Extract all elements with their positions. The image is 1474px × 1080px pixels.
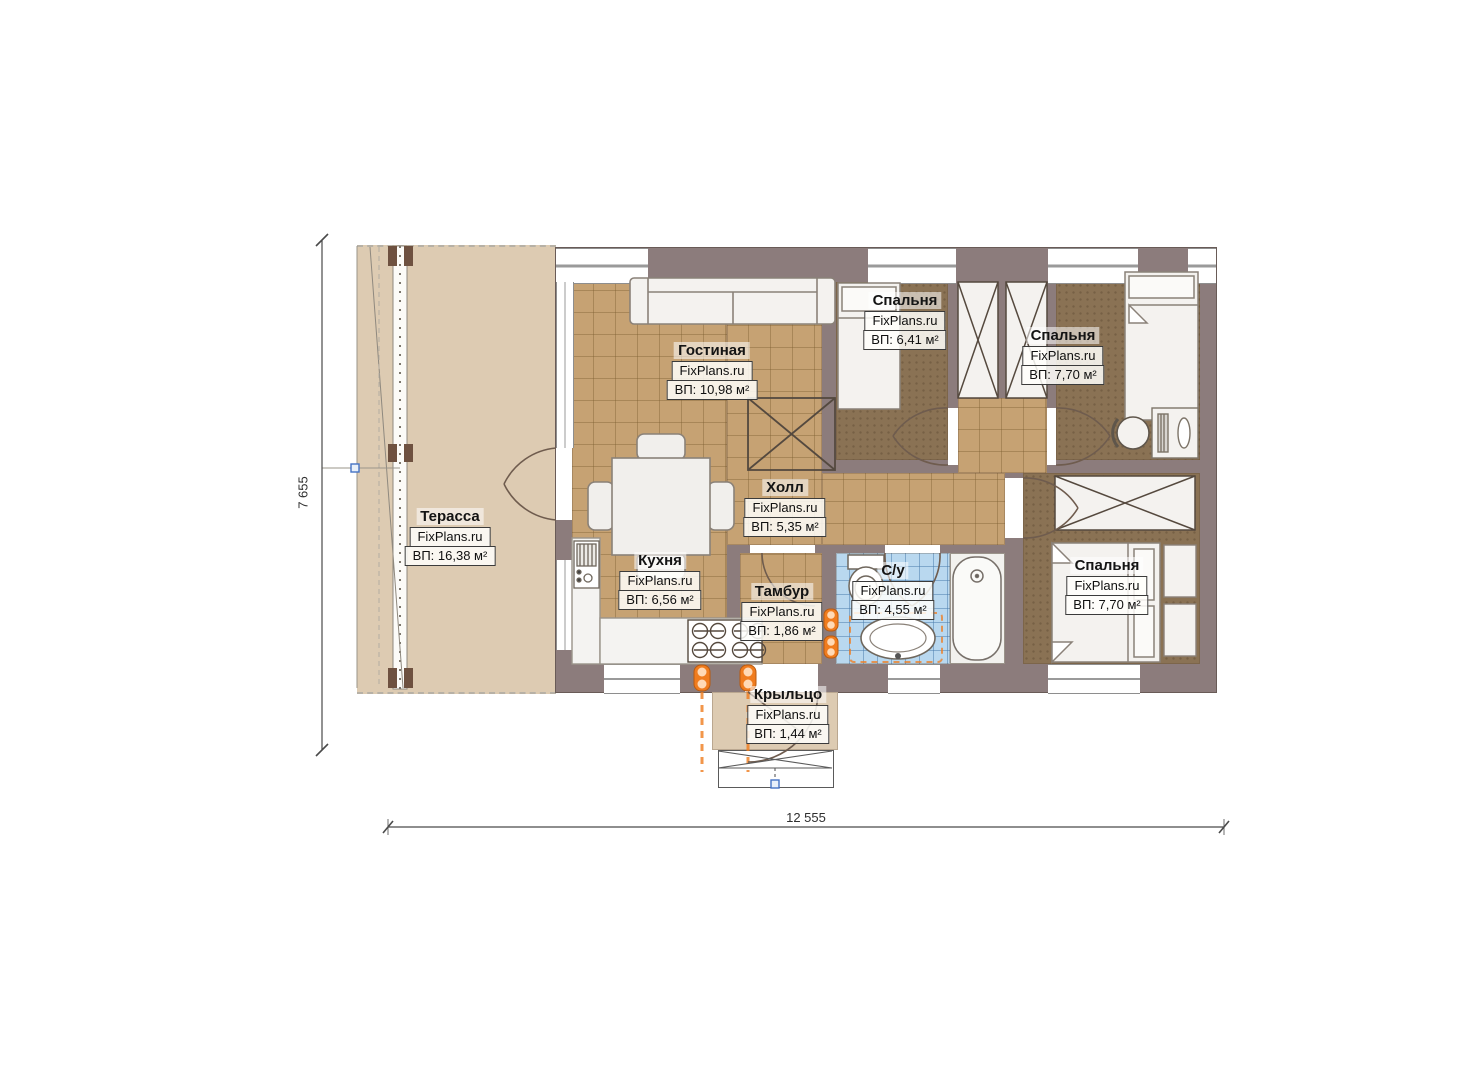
room-name: Крыльцо (750, 686, 826, 703)
room-label-kitchen: Кухня FixPlans.ru ВП: 6,56 м² (618, 552, 701, 610)
room-area: ВП: 6,41 м² (863, 330, 946, 350)
room-name: Кухня (634, 552, 686, 569)
hall-floor (822, 473, 1005, 545)
room-name: Спальня (869, 292, 942, 309)
watermark: FixPlans.ru (747, 705, 828, 725)
room-area: ВП: 7,70 м² (1021, 365, 1104, 385)
room-area: ВП: 4,55 м² (851, 600, 934, 620)
window-bedroom-bottom (1048, 664, 1140, 694)
window-corner (1188, 248, 1216, 284)
window-bedroom-top (868, 248, 956, 284)
window-bathroom (888, 664, 940, 694)
window-bedroom-right (1048, 248, 1138, 284)
watermark: FixPlans.ru (619, 571, 700, 591)
room-name: Терасса (416, 508, 483, 525)
room-name: Спальня (1071, 557, 1144, 574)
bathtub-zone (950, 553, 1005, 664)
door-gap-bedroom-right (1047, 408, 1056, 465)
room-label-living: Гостиная FixPlans.ru ВП: 10,98 м² (667, 342, 758, 400)
room-area: ВП: 7,70 м² (1065, 595, 1148, 615)
room-area: ВП: 1,86 м² (740, 621, 823, 641)
room-area: ВП: 6,56 м² (618, 590, 701, 610)
room-name: Гостиная (674, 342, 750, 359)
room-name: С/у (877, 562, 908, 579)
room-label-hall: Холл FixPlans.ru ВП: 5,35 м² (743, 479, 826, 537)
watermark: FixPlans.ru (1022, 346, 1103, 366)
room-label-terrace: Терасса FixPlans.ru ВП: 16,38 м² (405, 508, 496, 566)
room-label-bedroom-right: Спальня FixPlans.ru ВП: 7,70 м² (1021, 327, 1104, 385)
terrace-floor (357, 245, 556, 694)
watermark: FixPlans.ru (1066, 576, 1147, 596)
porch-steps (718, 750, 834, 788)
watermark: FixPlans.ru (864, 311, 945, 331)
door-gap-bedroom-top (948, 408, 958, 465)
door-gap-terrace (556, 448, 572, 520)
window-kitchen-side (556, 560, 574, 650)
room-area: ВП: 5,35 м² (743, 517, 826, 537)
watermark: FixPlans.ru (741, 602, 822, 622)
window-kitchen-bottom (604, 664, 680, 694)
room-label-bathroom: С/у FixPlans.ru ВП: 4,55 м² (851, 562, 934, 620)
dimension-line-vertical (316, 234, 328, 756)
room-label-bedroom-top: Спальня FixPlans.ru ВП: 6,41 м² (863, 292, 946, 350)
room-label-tambour: Тамбур FixPlans.ru ВП: 1,86 м² (740, 583, 823, 641)
floor-plan-canvas: Терасса FixPlans.ru ВП: 16,38 м² Гостина… (0, 0, 1474, 1080)
room-name: Холл (762, 479, 808, 496)
watermark: FixPlans.ru (671, 361, 752, 381)
watermark: FixPlans.ru (744, 498, 825, 518)
room-name: Спальня (1027, 327, 1100, 344)
room-label-bedroom-bottom: Спальня FixPlans.ru ВП: 7,70 м² (1065, 557, 1148, 615)
room-area: ВП: 10,98 м² (667, 380, 758, 400)
window-living (556, 248, 648, 284)
dimension-height: 7 655 (296, 458, 311, 528)
watermark: FixPlans.ru (409, 527, 490, 547)
room-area: ВП: 1,44 м² (746, 724, 829, 744)
door-gap-bathroom (885, 545, 940, 553)
room-area: ВП: 16,38 м² (405, 546, 496, 566)
door-gap-tambour (750, 545, 815, 553)
watermark: FixPlans.ru (852, 581, 933, 601)
window-terrace-wall (556, 282, 574, 448)
dimension-width: 12 555 (766, 810, 846, 825)
door-gap-bedroom-bottom (1005, 478, 1023, 538)
hall-nook-floor (958, 398, 1047, 473)
room-label-porch: Крыльцо FixPlans.ru ВП: 1,44 м² (746, 686, 829, 744)
room-name: Тамбур (751, 583, 813, 600)
